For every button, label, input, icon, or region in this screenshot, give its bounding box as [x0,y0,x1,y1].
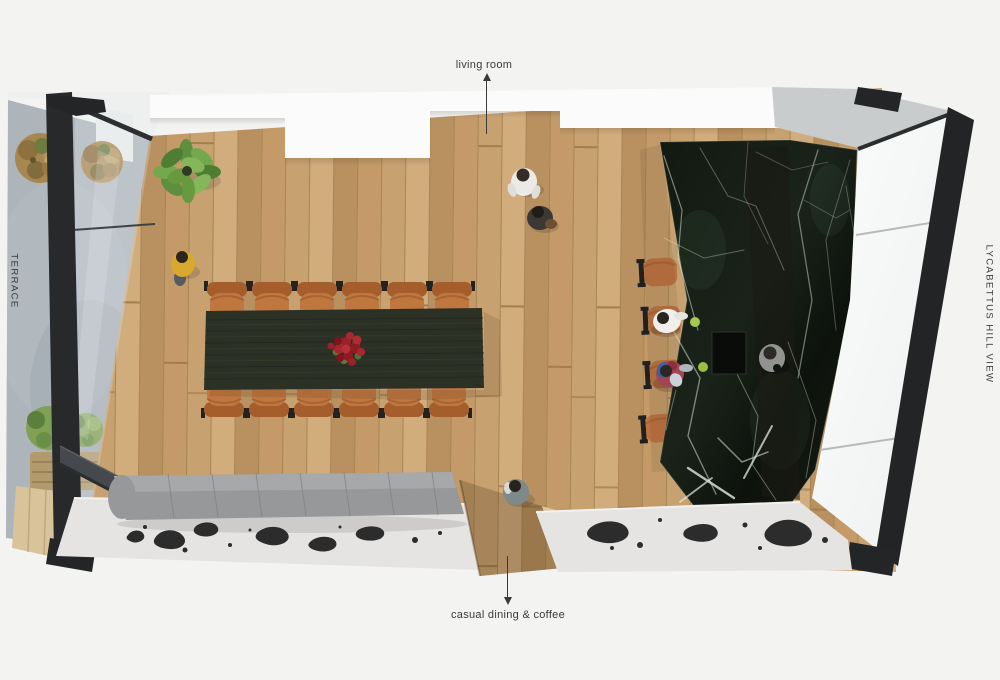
label-living-room: living room [456,59,513,71]
bench [108,472,464,520]
arrow-up-head-icon [483,73,491,81]
label-casual-dining: casual dining & coffee [451,609,565,621]
floor-plan-rendering: living room casual dining & coffee TERRA… [0,0,1000,680]
plate-green-1 [690,317,700,327]
cooktop-sink [712,332,746,374]
arrow-down-icon [507,556,508,598]
arrow-up-icon [486,80,487,134]
label-terrace: TERRACE [9,253,20,308]
scene-svg [0,0,1000,680]
arrow-down-head-icon [504,597,512,605]
label-lycabettus-hill-view: LYCABETTUS HILL VIEW [984,245,995,384]
plate-green-2 [698,362,708,372]
bottom-right-slab [536,502,852,572]
